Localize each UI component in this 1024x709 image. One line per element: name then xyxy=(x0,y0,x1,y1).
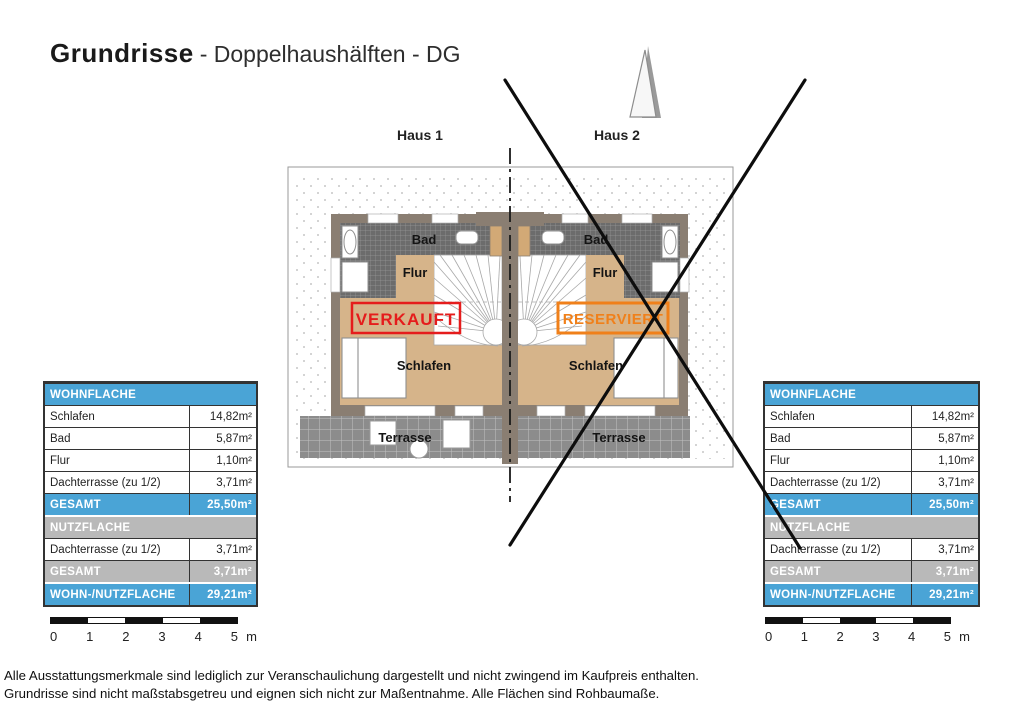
scale-tick-label: 4 xyxy=(195,629,202,644)
flur-left xyxy=(396,255,434,298)
table-cell-value: 3,71m² xyxy=(189,539,256,560)
table-cell-label: Dachterrasse (zu 1/2) xyxy=(765,477,911,489)
bed-right xyxy=(614,338,678,398)
table-cell-label: Flur xyxy=(45,455,189,467)
bed-left xyxy=(342,338,406,398)
scale-tick-label: 0 xyxy=(50,629,57,644)
scale-tick-label: 1 xyxy=(801,629,808,644)
table-row: Dachterrasse (zu 1/2) 3,71m² xyxy=(45,471,256,493)
scale-tick-label: 5 xyxy=(944,629,951,644)
table-row: WOHNFLÄCHE xyxy=(45,383,256,405)
room-label-terrasse-right: Terrasse xyxy=(592,430,645,445)
table-cell-value: 29,21m² xyxy=(911,584,978,605)
table-cell-value: 1,10m² xyxy=(189,450,256,471)
building-walls xyxy=(331,214,688,416)
table-row: WOHNFLÄCHE xyxy=(765,383,978,405)
table-cell-value: 29,21m² xyxy=(189,584,256,605)
table-cell-label: WOHN-/NUTZFLÄCHE xyxy=(45,589,189,601)
table-cell-label: GESAMT xyxy=(765,566,911,578)
table-cell-value xyxy=(912,517,978,538)
room-label-flur-left: Flur xyxy=(403,265,428,280)
north-arrow-icon xyxy=(630,46,661,118)
table-row: WOHN-/NUTZFLÄCHE 29,21m² xyxy=(45,582,256,605)
table-row: Schlafen 14,82m² xyxy=(765,405,978,427)
scale-bar-segments xyxy=(50,617,238,624)
table-cell-value: 14,82m² xyxy=(189,406,256,427)
table-cell-value: 14,82m² xyxy=(911,406,978,427)
building-interior xyxy=(340,223,679,405)
table-row: GESAMT 25,50m² xyxy=(765,493,978,515)
scale-bar-right: 012345 m xyxy=(765,617,951,644)
shaft-right xyxy=(518,226,530,256)
table-row: Flur 1,10m² xyxy=(45,449,256,471)
terrace-tiles xyxy=(300,416,690,458)
table-row: Dachterrasse (zu 1/2) 3,71m² xyxy=(765,538,978,560)
scale-bar-left: 012345 m xyxy=(50,617,238,644)
cross-line-1 xyxy=(505,80,800,548)
scale-unit-label: m xyxy=(246,629,257,644)
terrace-furniture xyxy=(370,420,470,458)
table-cell-value xyxy=(190,517,256,538)
table-cell-value xyxy=(190,384,256,405)
table-cell-value xyxy=(912,384,978,405)
table-cell-value: 3,71m² xyxy=(189,561,256,582)
table-cell-label: Flur xyxy=(765,455,911,467)
table-cell-label: GESAMT xyxy=(45,499,189,511)
table-row: Dachterrasse (zu 1/2) 3,71m² xyxy=(765,471,978,493)
scale-tick-label: 0 xyxy=(765,629,772,644)
table-cell-label: WOHNFLÄCHE xyxy=(45,389,190,401)
room-label-schlafen-right: Schlafen xyxy=(569,358,623,373)
table-cell-value: 3,71m² xyxy=(911,472,978,493)
disclaimer-line-2: Grundrisse sind nicht maßstabsgetreu und… xyxy=(4,685,699,703)
roof-stipple-area xyxy=(296,175,725,459)
page-title: Grundrisse- Doppelhaushälften - DG xyxy=(50,38,461,69)
table-row: Flur 1,10m² xyxy=(765,449,978,471)
table-cell-label: WOHN-/NUTZFLÄCHE xyxy=(765,589,911,601)
table-row: Dachterrasse (zu 1/2) 3,71m² xyxy=(45,538,256,560)
shower-right xyxy=(652,262,678,292)
bath-left xyxy=(340,223,490,255)
table-cell-label: GESAMT xyxy=(45,566,189,578)
status-box-reserved: RESERVIERT xyxy=(558,303,668,333)
cross-line-2 xyxy=(510,80,805,545)
toilet-left xyxy=(456,231,478,244)
table-row: GESAMT 3,71m² xyxy=(765,560,978,582)
table-row: GESAMT 25,50m² xyxy=(45,493,256,515)
party-wall xyxy=(502,214,518,464)
table-cell-label: Schlafen xyxy=(765,411,911,423)
cross-out-lines xyxy=(505,80,805,548)
terrace xyxy=(300,416,690,458)
scale-tick-label: 4 xyxy=(908,629,915,644)
bath-right xyxy=(530,223,680,255)
table-cell-value: 3,71m² xyxy=(189,472,256,493)
table-cell-value: 25,50m² xyxy=(911,494,978,515)
scale-tick-label: 2 xyxy=(122,629,129,644)
table-cell-label: WOHNFLÄCHE xyxy=(765,389,912,401)
window-openings xyxy=(331,214,689,416)
disclaimer-text: Alle Ausstattungsmerkmale sind lediglich… xyxy=(4,667,699,704)
table-row: WOHN-/NUTZFLÄCHE 29,21m² xyxy=(765,582,978,605)
table-row: NUTZFLÄCHE xyxy=(765,515,978,538)
table-cell-label: Bad xyxy=(45,433,189,445)
room-label-terrasse-left: Terrasse xyxy=(378,430,431,445)
table-row: GESAMT 3,71m² xyxy=(45,560,256,582)
scale-unit-label: m xyxy=(959,629,970,644)
building xyxy=(331,212,689,416)
top-wall-block xyxy=(476,212,544,226)
table-row: Bad 5,87m² xyxy=(765,427,978,449)
haus1-label: Haus 1 xyxy=(397,127,443,143)
bath-left-lower xyxy=(340,255,398,298)
table-cell-label: GESAMT xyxy=(765,499,911,511)
scale-bar-labels: 012345 xyxy=(765,629,951,644)
scale-bar-labels: 012345 xyxy=(50,629,238,644)
table-cell-value: 3,71m² xyxy=(911,539,978,560)
bathtub-right xyxy=(662,226,678,258)
stairs-left xyxy=(434,255,509,346)
room-label-bad-right: Bad xyxy=(584,232,609,247)
table-row: Bad 5,87m² xyxy=(45,427,256,449)
scale-tick-label: 5 xyxy=(231,629,238,644)
page-title-subtitle: - Doppelhaushälften - DG xyxy=(200,41,461,67)
scale-tick-label: 3 xyxy=(158,629,165,644)
status-label-sold: VERKAUFT xyxy=(356,310,457,329)
table-cell-label: NUTZFLÄCHE xyxy=(45,522,190,534)
room-label-bad-left: Bad xyxy=(412,232,437,247)
table-cell-label: Dachterrasse (zu 1/2) xyxy=(45,477,189,489)
table-cell-label: Bad xyxy=(765,433,911,445)
shower-left xyxy=(342,262,368,292)
table-cell-value: 3,71m² xyxy=(911,561,978,582)
table-cell-value: 1,10m² xyxy=(911,450,978,471)
bedroom-left xyxy=(340,250,502,405)
scale-tick-label: 2 xyxy=(837,629,844,644)
flur-right xyxy=(586,255,624,298)
bathtub-left xyxy=(342,226,358,258)
area-table-left: WOHNFLÄCHE Schlafen 14,82m² Bad 5,87m² F… xyxy=(43,381,258,607)
area-table-right: WOHNFLÄCHE Schlafen 14,82m² Bad 5,87m² F… xyxy=(763,381,980,607)
table-row: Schlafen 14,82m² xyxy=(45,405,256,427)
table-cell-label: Dachterrasse (zu 1/2) xyxy=(45,544,189,556)
toilet-right xyxy=(542,231,564,244)
table-cell-value: 5,87m² xyxy=(189,428,256,449)
page-title-main: Grundrisse xyxy=(50,38,194,68)
shaft-left xyxy=(490,226,502,256)
table-cell-value: 25,50m² xyxy=(189,494,256,515)
haus2-label: Haus 2 xyxy=(594,127,640,143)
stairs-right xyxy=(511,255,586,346)
bath-right-lower xyxy=(622,255,680,298)
plot-boundary xyxy=(288,167,733,467)
bath-fixtures xyxy=(342,226,678,292)
table-cell-value: 5,87m² xyxy=(911,428,978,449)
table-row: NUTZFLÄCHE xyxy=(45,515,256,538)
scale-tick-label: 3 xyxy=(872,629,879,644)
status-label-reserved: RESERVIERT xyxy=(563,311,664,328)
beds xyxy=(342,338,678,398)
table-cell-label: Schlafen xyxy=(45,411,189,423)
table-cell-label: NUTZFLÄCHE xyxy=(765,522,912,534)
table-cell-label: Dachterrasse (zu 1/2) xyxy=(765,544,911,556)
room-label-flur-right: Flur xyxy=(593,265,618,280)
scale-bar-segments xyxy=(765,617,951,624)
room-label-schlafen-left: Schlafen xyxy=(397,358,451,373)
disclaimer-line-1: Alle Ausstattungsmerkmale sind lediglich… xyxy=(4,667,699,685)
bedroom-right xyxy=(518,250,679,405)
scale-tick-label: 1 xyxy=(86,629,93,644)
status-box-sold: VERKAUFT xyxy=(352,303,460,333)
